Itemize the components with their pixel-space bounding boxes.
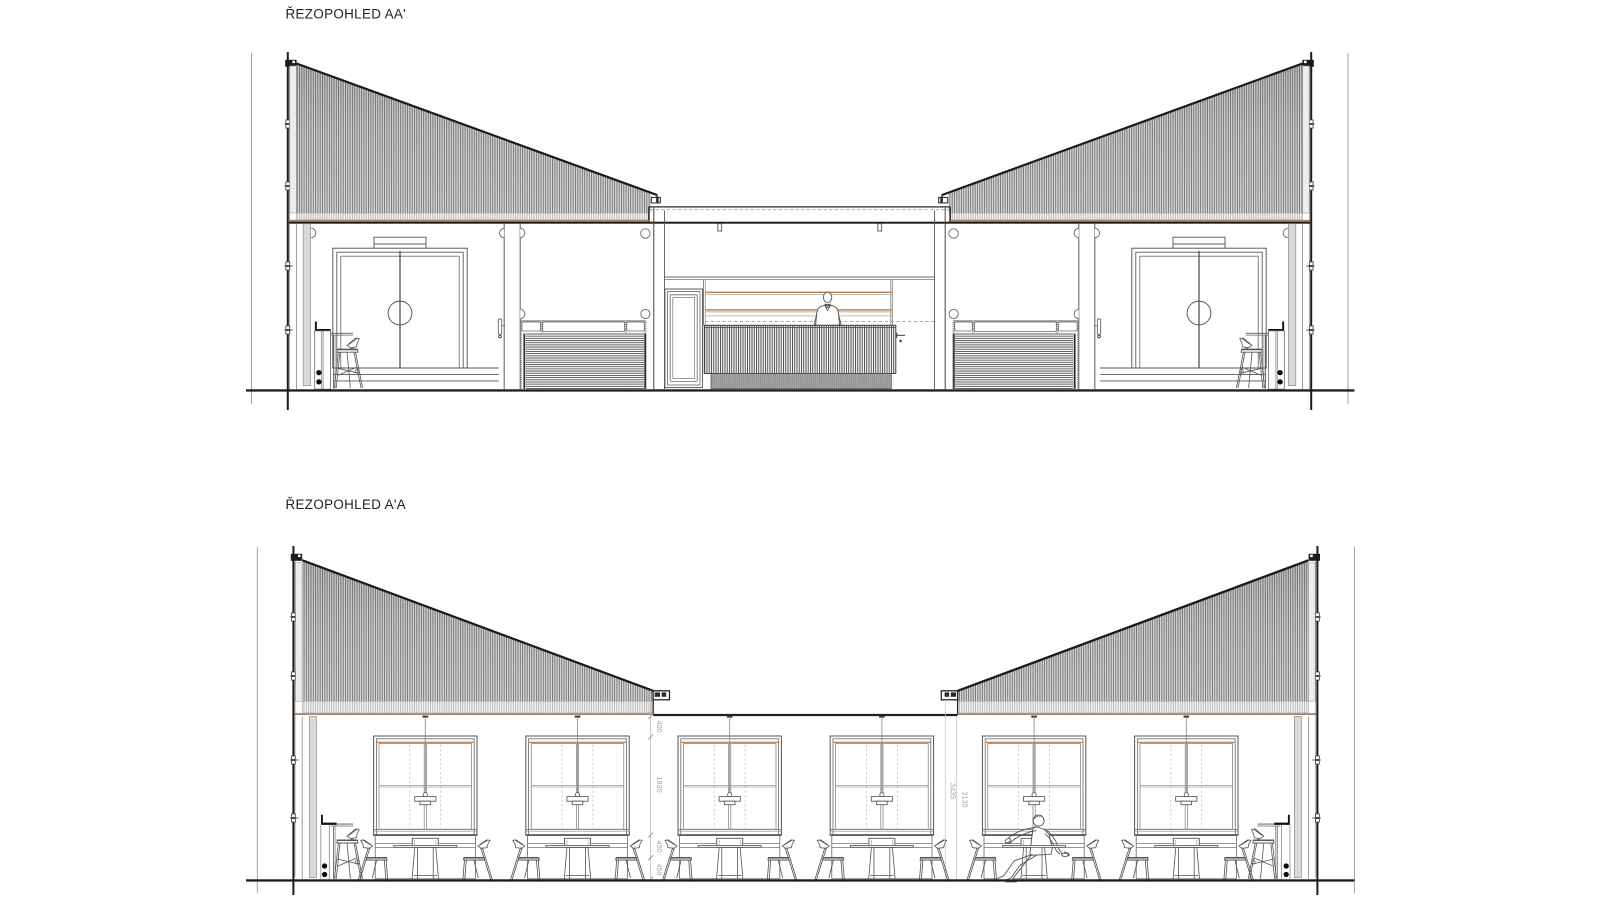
svg-text:3135: 3135	[961, 791, 970, 807]
svg-text:400: 400	[655, 720, 664, 732]
svg-text:3435: 3435	[948, 783, 957, 799]
svg-text:ŘEZOPOHLED A'A: ŘEZOPOHLED A'A	[286, 497, 407, 512]
svg-text:1835: 1835	[655, 776, 664, 792]
svg-text:450: 450	[655, 863, 664, 875]
svg-text:450: 450	[655, 840, 664, 852]
svg-text:ŘEZOPOHLED AA': ŘEZOPOHLED AA'	[286, 7, 407, 22]
